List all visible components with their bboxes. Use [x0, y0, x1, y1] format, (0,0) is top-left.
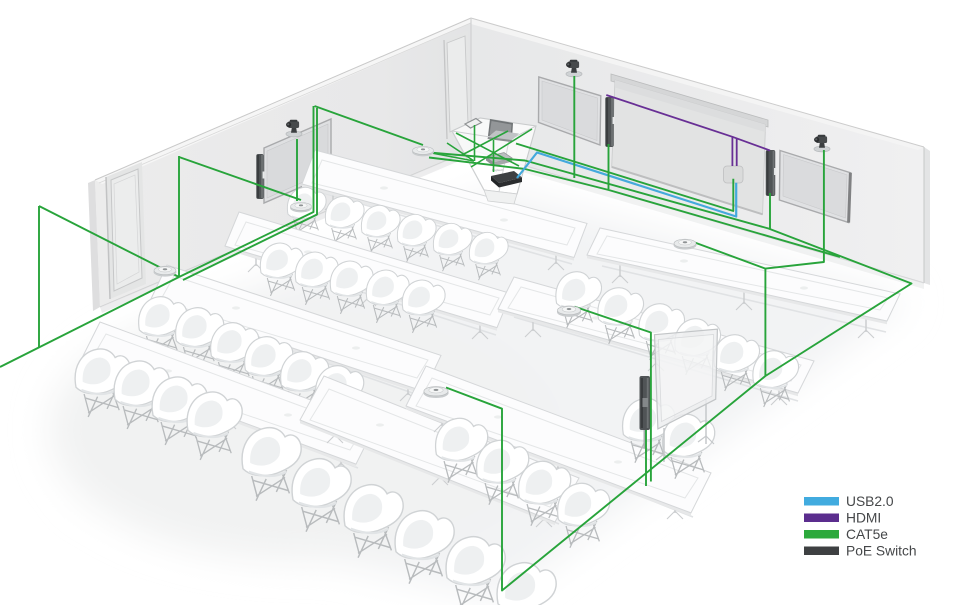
svg-text:HDMI: HDMI [846, 511, 881, 526]
svg-text:CAT5e: CAT5e [846, 527, 888, 542]
svg-text:USB2.0: USB2.0 [846, 494, 894, 509]
svg-text:PoE Switch: PoE Switch [846, 544, 917, 559]
